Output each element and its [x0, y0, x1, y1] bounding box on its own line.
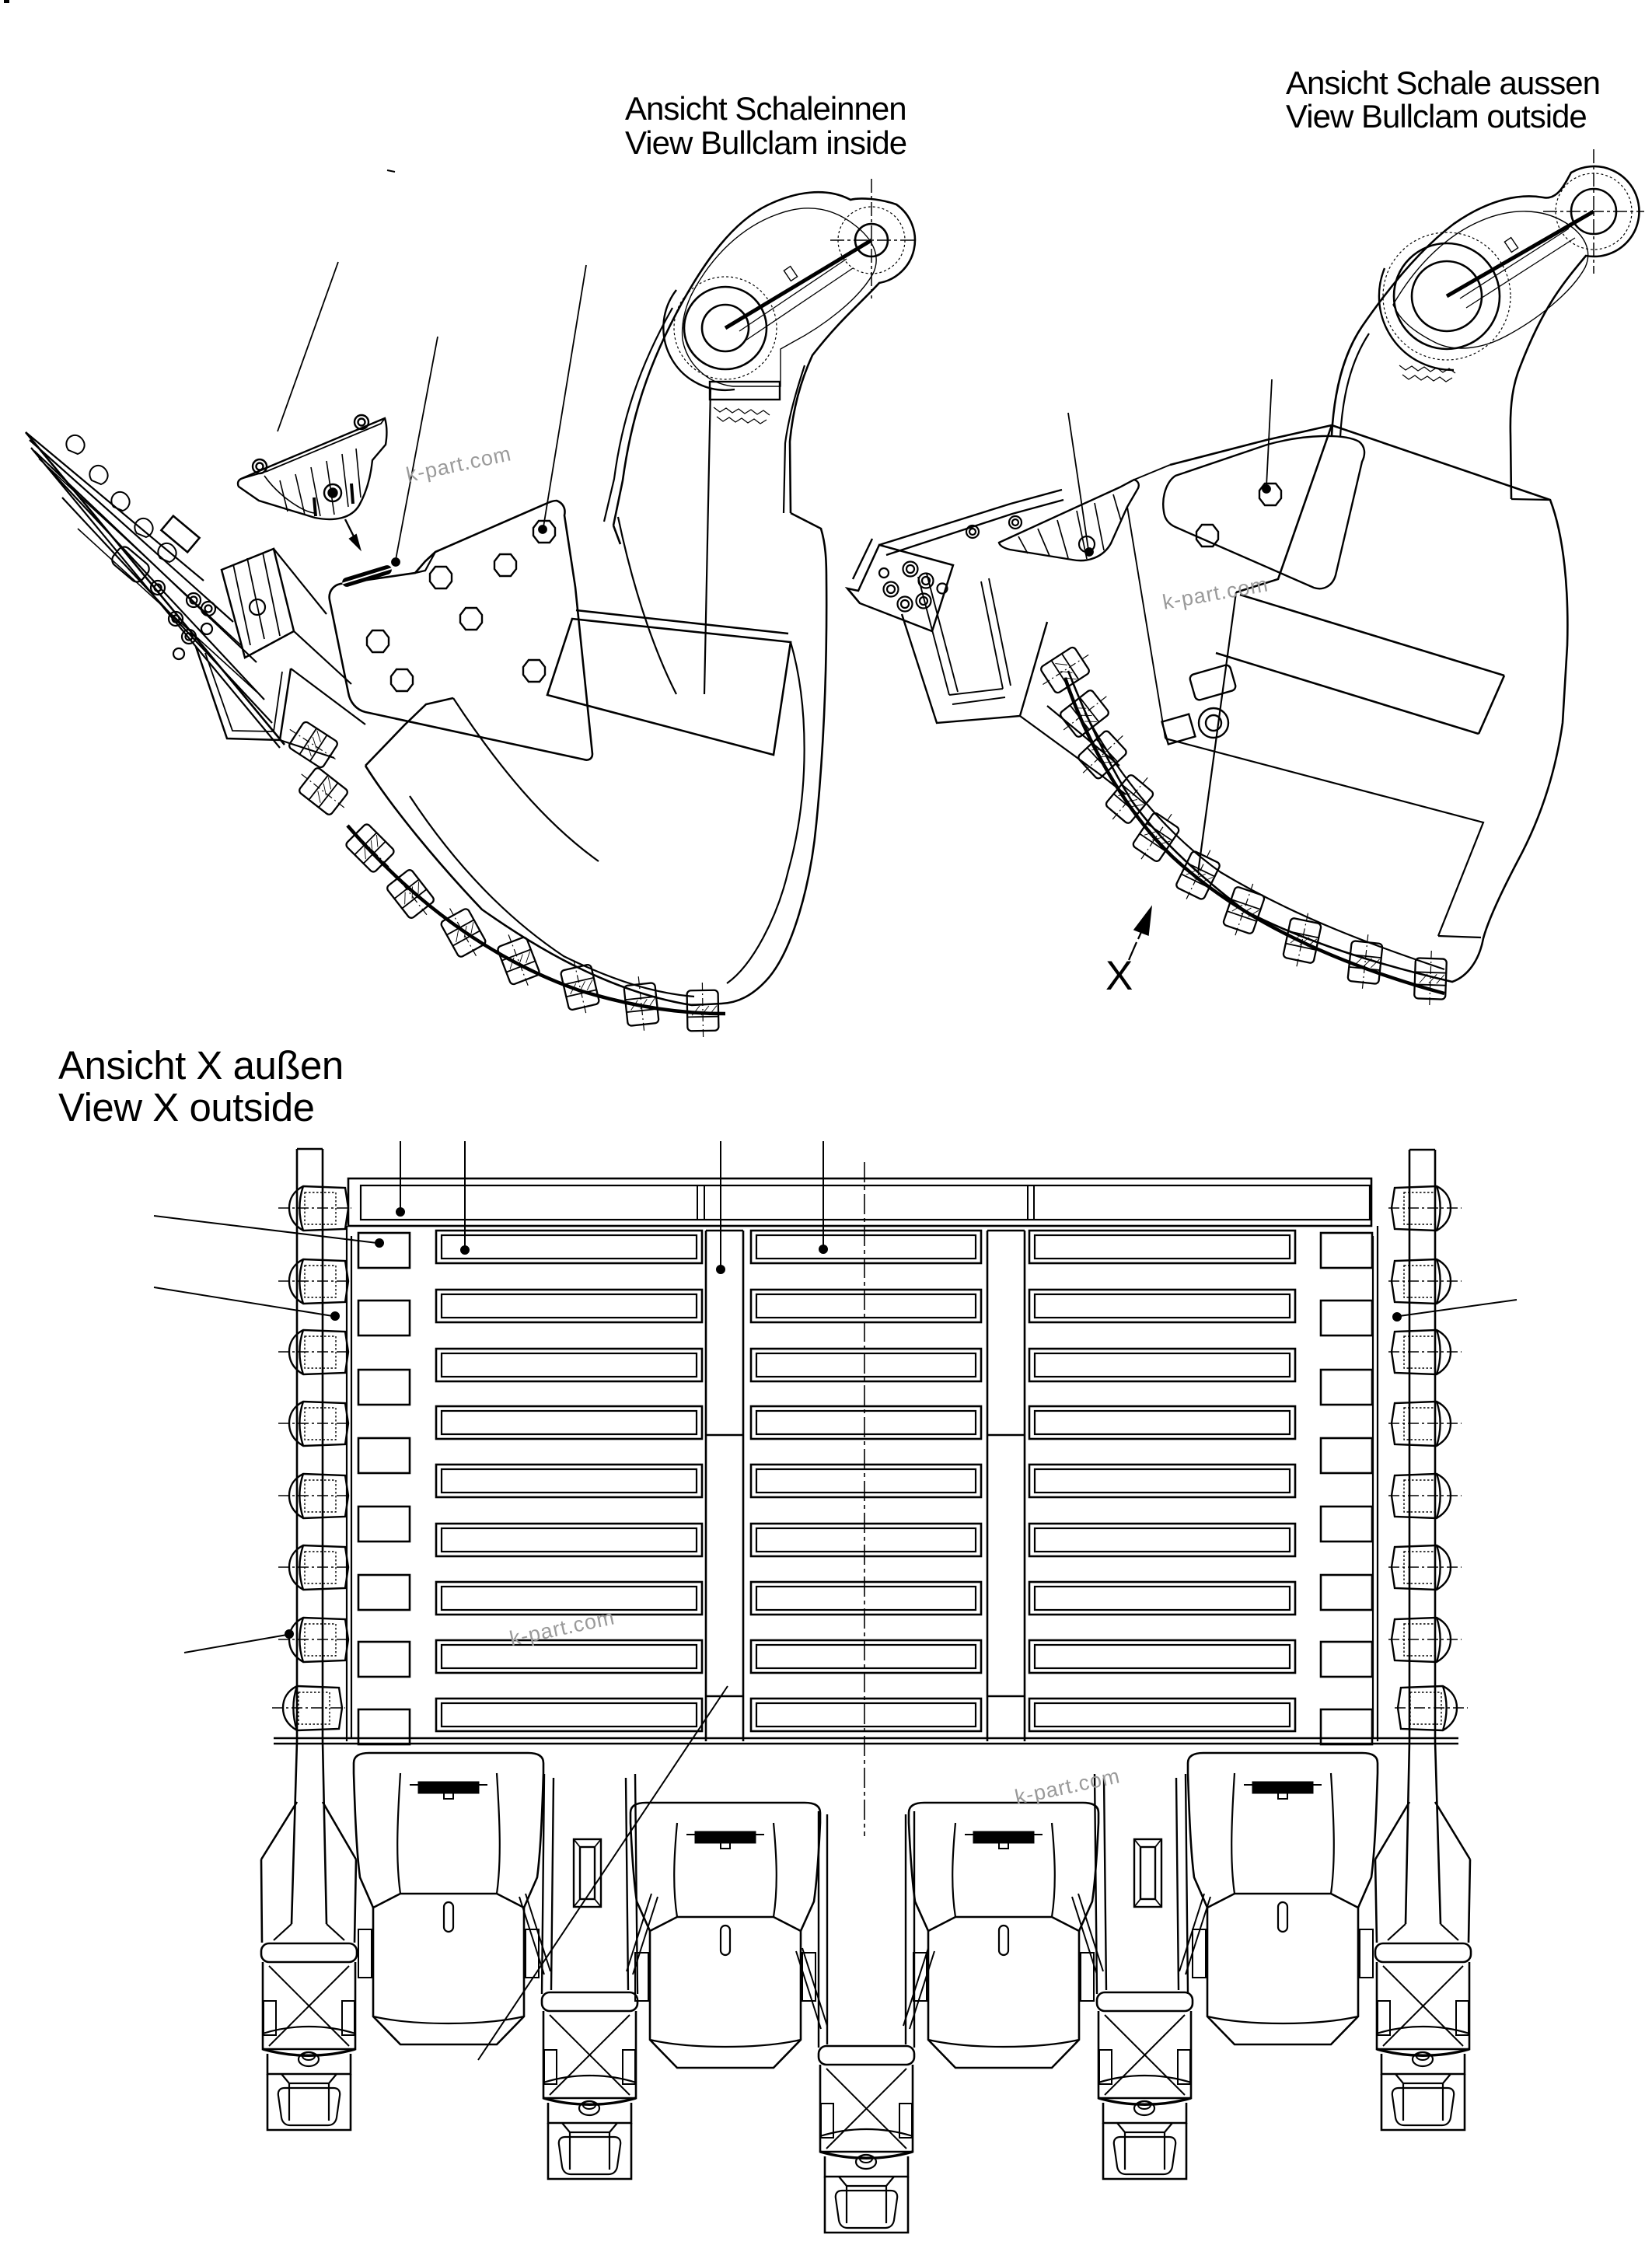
svg-text:View Bullclam inside: View Bullclam inside	[625, 124, 906, 161]
svg-text:Ansicht Schale aussen: Ansicht Schale aussen	[1286, 65, 1600, 101]
svg-text:Ansicht X außen: Ansicht X außen	[58, 1043, 344, 1088]
svg-text:Ansicht Schaleinnen: Ansicht Schaleinnen	[625, 90, 906, 127]
svg-text:View Bullclam outside: View Bullclam outside	[1286, 98, 1587, 134]
svg-text:View X outside: View X outside	[58, 1085, 314, 1129]
